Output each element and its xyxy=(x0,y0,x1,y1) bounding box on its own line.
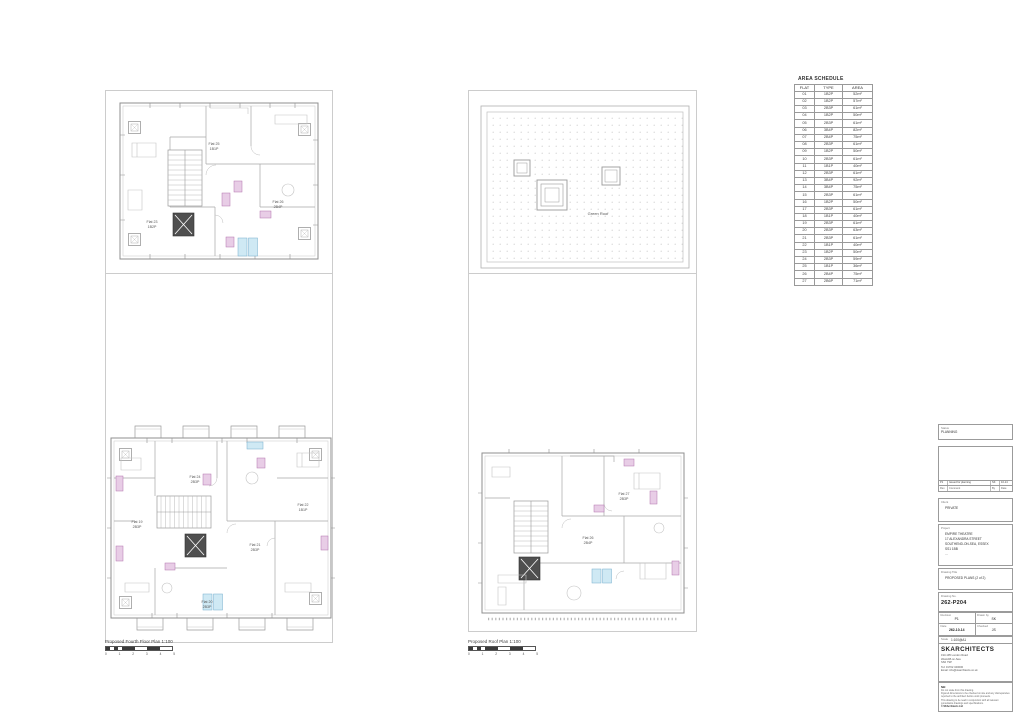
flat-label: Flat 20 xyxy=(202,600,213,604)
flat-type: 1B2P xyxy=(148,225,157,229)
field-checked: Checked JS xyxy=(976,624,1013,635)
plan-roof: Green Roof xyxy=(478,103,692,271)
flat-type: 1B1P xyxy=(210,147,219,151)
field-value: SK xyxy=(977,617,1011,621)
scale-label: Scale xyxy=(941,638,948,642)
status-box: Status PLANNING xyxy=(938,424,1013,440)
flat-type: 2B3P xyxy=(133,525,142,529)
flat-label: Flat 19 xyxy=(132,520,143,524)
table-row: 192B3P61m² xyxy=(795,221,873,228)
flat-label: Flat 24 xyxy=(190,475,201,479)
viewport-divider xyxy=(469,273,696,274)
viewport-divider xyxy=(106,273,332,274)
table-row: 212B3P61m² xyxy=(795,235,873,242)
lift-icon xyxy=(185,534,206,557)
revision-header-row: Rev Comment By Date xyxy=(939,485,1012,491)
area-schedule-table: FLAT TYPE AREA 011B2P52m²021B2P57m²032B3… xyxy=(794,84,873,286)
table-row: 011B2P52m² xyxy=(795,91,873,98)
notes-lines: Do not scale from this drawing.Figured d… xyxy=(941,689,1010,709)
revision-table: P1 Issued for planning SK 10-14 Rev Comm… xyxy=(938,446,1013,492)
text-line: 4 xyxy=(160,652,162,656)
table-row: 161B2P50m² xyxy=(795,199,873,206)
flat-type: 2B3P xyxy=(251,548,260,552)
lift-icon xyxy=(173,213,194,236)
flat-label: Flat 27 xyxy=(619,492,630,496)
rev-header-comment: Comment xyxy=(948,486,991,491)
title-block: Status PLANNING P1 Issued for planning S… xyxy=(938,424,1013,712)
flat-label: Flat 26 xyxy=(583,536,594,540)
revision-spacer xyxy=(939,447,1012,480)
plan-caption: Proposed Fourth Floor Plan 1:100 xyxy=(105,640,175,645)
client-value: PRIVATE xyxy=(941,506,1010,510)
firm-box: Scale 1:100@A1 SKARCHITECTS 193-195 Lond… xyxy=(938,636,1013,682)
text-line: ... xyxy=(945,552,1010,556)
text-line: 5 xyxy=(536,652,538,656)
text-line: SS1 1BB xyxy=(945,547,1010,551)
col-header-flat: FLAT xyxy=(795,84,815,91)
table-header-row: FLAT TYPE AREA xyxy=(795,84,873,91)
table-row: 172B3P61m² xyxy=(795,206,873,213)
firm-address: 193-195 London RoadWestcliff-on-SeaSS0 7… xyxy=(939,654,1012,664)
table-row: 041B2P50m² xyxy=(795,113,873,120)
table-row: 143B4P75m² xyxy=(795,185,873,192)
text-line: 0 xyxy=(468,652,470,656)
table-row: 122B3P61m² xyxy=(795,170,873,177)
table-row: 272B6P71m² xyxy=(795,278,873,285)
scale-bar xyxy=(468,646,536,651)
text-line: This drawing to be read in conjunction w… xyxy=(941,699,1010,705)
stair xyxy=(157,496,211,528)
area-schedule: AREA SCHEDULE FLAT TYPE AREA 011B2P52m²0… xyxy=(794,76,874,286)
field-value: P1 xyxy=(941,617,974,621)
text-line: 4 xyxy=(523,652,525,656)
table-row: 242B3P59m² xyxy=(795,257,873,264)
flat-label: Flat 22 xyxy=(298,503,309,507)
rosette-icon xyxy=(120,449,132,461)
table-row: 082B3P61m² xyxy=(795,142,873,149)
firm-contact: Tel: 01702 340000 Email: info@skarchitec… xyxy=(939,666,1012,673)
scale-value: 1:100@A1 xyxy=(951,638,966,642)
text-line: Do not scale from this drawing. xyxy=(941,689,1010,692)
table-row: 111B1P40m² xyxy=(795,163,873,170)
rosette-icon xyxy=(299,124,311,136)
scale-numbers: 012345 xyxy=(105,652,175,656)
flat-type: 2B4P xyxy=(274,205,283,209)
table-row: 133B4P92m² xyxy=(795,177,873,184)
field-date: Date 262-10-14 xyxy=(939,624,976,635)
roof-label: Green Roof xyxy=(588,211,610,216)
text-line: 2 xyxy=(495,652,497,656)
rosette-icon xyxy=(129,122,141,134)
stair xyxy=(514,501,548,553)
left-plan-caption-block: Proposed Fourth Floor Plan 1:100 012345 xyxy=(105,640,175,656)
flat-type: 2B3P xyxy=(191,480,200,484)
rosette-icon xyxy=(310,449,322,461)
table-row: 091B2P50m² xyxy=(795,149,873,156)
table-row: 072B4P75m² xyxy=(795,134,873,141)
rosette-icon xyxy=(299,228,311,240)
text-line: EMPIRE THEATRE xyxy=(945,532,1010,536)
text-line: 1 xyxy=(482,652,484,656)
drawing-sheet: Flat 25 1B1P Flat 23 1B2P Flat 26 2B4P xyxy=(0,0,1024,723)
table-row: 152B3P61m² xyxy=(795,192,873,199)
col-header-type: TYPE xyxy=(815,84,843,91)
text-line: 5 xyxy=(173,652,175,656)
project-label: Project xyxy=(941,527,1010,530)
flat-type: 2B3P xyxy=(620,497,629,501)
drawing-number-label: Drawing No. xyxy=(941,595,1010,598)
table-row: 021B2P57m² xyxy=(795,98,873,105)
text-line: 2 xyxy=(132,652,134,656)
table-row: 052B3P61m² xyxy=(795,120,873,127)
plan-fifth-floor: Flat 25 1B1P Flat 23 1B2P Flat 26 2B4P xyxy=(110,95,328,270)
table-row: 032B3P61m² xyxy=(795,106,873,113)
drawing-number-value: 262-P204 xyxy=(941,600,1010,606)
table-row: 221B1P40m² xyxy=(795,242,873,249)
stair xyxy=(168,150,202,206)
table-row: 102B3P61m² xyxy=(795,156,873,163)
table-row: 231B2P50m² xyxy=(795,249,873,256)
table-row: 262B4P75m² xyxy=(795,271,873,278)
rev-header-by: By xyxy=(991,486,1000,491)
text-line: 3 xyxy=(509,652,511,656)
area-schedule-title: AREA SCHEDULE xyxy=(794,76,874,82)
field-revision: Revision P1 xyxy=(939,613,976,624)
flat-label: Flat 25 xyxy=(209,142,220,146)
fields-grid: Revision P1 Drawn by SK Date 262-10-14 C… xyxy=(938,612,1013,636)
rosette-icon xyxy=(310,593,322,605)
rev-header-date: Date xyxy=(1000,486,1012,491)
scale-row: Scale 1:100@A1 xyxy=(939,637,1012,644)
rosette-icon xyxy=(120,597,132,609)
flat-label: Flat 21 xyxy=(250,543,261,547)
firm-name: SKARCHITECTS xyxy=(939,644,1012,654)
firm-email: Email: info@skarchitects.co.uk xyxy=(941,669,1010,672)
text-line: SOUTHEND-ON-SEA, ESSEX xyxy=(945,542,1010,546)
flat-label: Flat 23 xyxy=(147,220,158,224)
client-box: Client PRIVATE xyxy=(938,498,1013,522)
table-row: 251B1P36m² xyxy=(795,264,873,271)
drawing-title-label: Drawing Title xyxy=(941,571,1010,574)
text-line: 17 ALEXANDRA STREET xyxy=(945,537,1010,541)
text-line: SS0 7SP xyxy=(941,661,1010,664)
status-value: PLANNING xyxy=(941,430,1010,434)
lift-icon xyxy=(519,557,540,580)
rev-header-rev: Rev xyxy=(939,486,948,491)
rosette-icon xyxy=(129,234,141,246)
col-header-area: AREA xyxy=(843,84,873,91)
project-lines: EMPIRE THEATRE17 ALEXANDRA STREETSOUTHEN… xyxy=(941,532,1010,556)
project-box: Project EMPIRE THEATRE17 ALEXANDRA STREE… xyxy=(938,524,1013,566)
flat-type: 1B1P xyxy=(299,508,308,512)
text-line: 1 xyxy=(119,652,121,656)
text-line: © SKArchitects Ltd xyxy=(941,705,1010,708)
table-row: 181B1P40m² xyxy=(795,213,873,220)
table-row: 063B4P82m² xyxy=(795,127,873,134)
flat-label: Flat 26 xyxy=(273,200,284,204)
scale-bar xyxy=(105,646,173,651)
mid-plan-caption-block: Proposed Roof Plan 1:100 012345 xyxy=(468,640,538,656)
flat-type: 2B4P xyxy=(584,541,593,545)
drawing-title-box: Drawing Title PROPOSED PLANS (2 of 2) xyxy=(938,568,1013,590)
scale-numbers: 012345 xyxy=(468,652,538,656)
field-value: JS xyxy=(977,628,1011,632)
client-label: Client xyxy=(941,501,1010,504)
text-line: Figured dimensions to be checked on site… xyxy=(941,692,1010,698)
plan-fourth-floor: Flat 19 2B3P Flat 24 2B3P Flat 21 2B3P F… xyxy=(107,418,335,640)
plan-caption: Proposed Roof Plan 1:100 xyxy=(468,640,538,645)
field-value: 262-10-14 xyxy=(941,628,974,632)
drawing-title-value: PROPOSED PLANS (2 of 2) xyxy=(941,576,1010,580)
field-drawn-by: Drawn by SK xyxy=(976,613,1013,624)
text-line: 0 xyxy=(105,652,107,656)
drawing-number-box: Drawing No. 262-P204 xyxy=(938,592,1013,612)
flat-type: 2B3P xyxy=(203,605,212,609)
text-line: 3 xyxy=(146,652,148,656)
notes-box: NB: Do not scale from this drawing.Figur… xyxy=(938,682,1013,712)
table-row: 202B3P63m² xyxy=(795,228,873,235)
plan-fifth-floor-furnished: Flat 27 2B3P Flat 26 2B4P xyxy=(474,443,692,631)
